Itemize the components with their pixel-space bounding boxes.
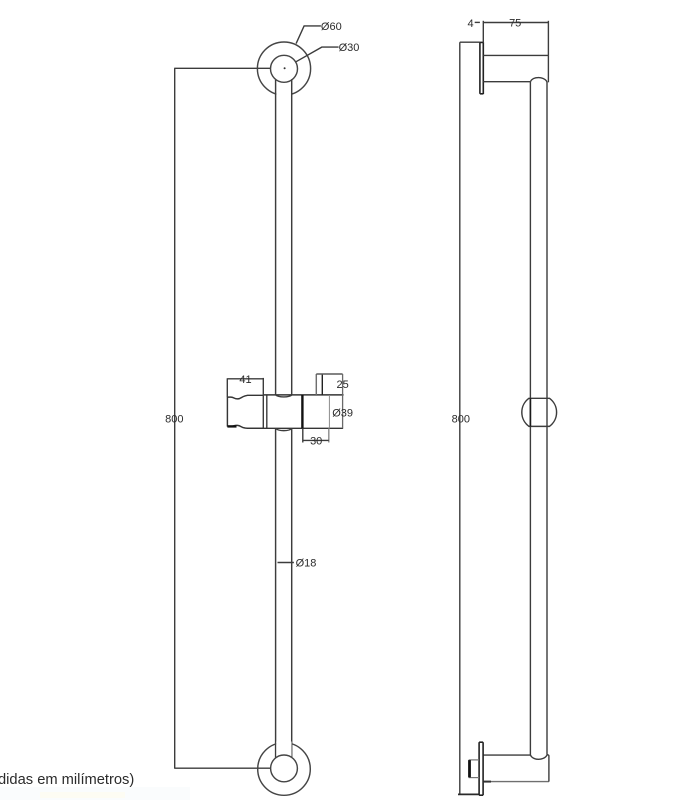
svg-text:800: 800 xyxy=(452,414,470,426)
svg-text:25: 25 xyxy=(336,379,348,391)
svg-text:didas em milímetros): didas em milímetros) xyxy=(0,772,134,788)
svg-text:Ø30: Ø30 xyxy=(339,42,360,54)
svg-text:Ø39: Ø39 xyxy=(332,408,353,420)
svg-text:800: 800 xyxy=(165,414,183,426)
svg-text:4: 4 xyxy=(468,18,474,30)
svg-text:75: 75 xyxy=(509,18,521,30)
svg-text:30: 30 xyxy=(310,435,322,447)
svg-text:Ø18: Ø18 xyxy=(296,557,317,569)
svg-text:Ø60: Ø60 xyxy=(321,21,342,33)
svg-text:41: 41 xyxy=(239,374,251,386)
